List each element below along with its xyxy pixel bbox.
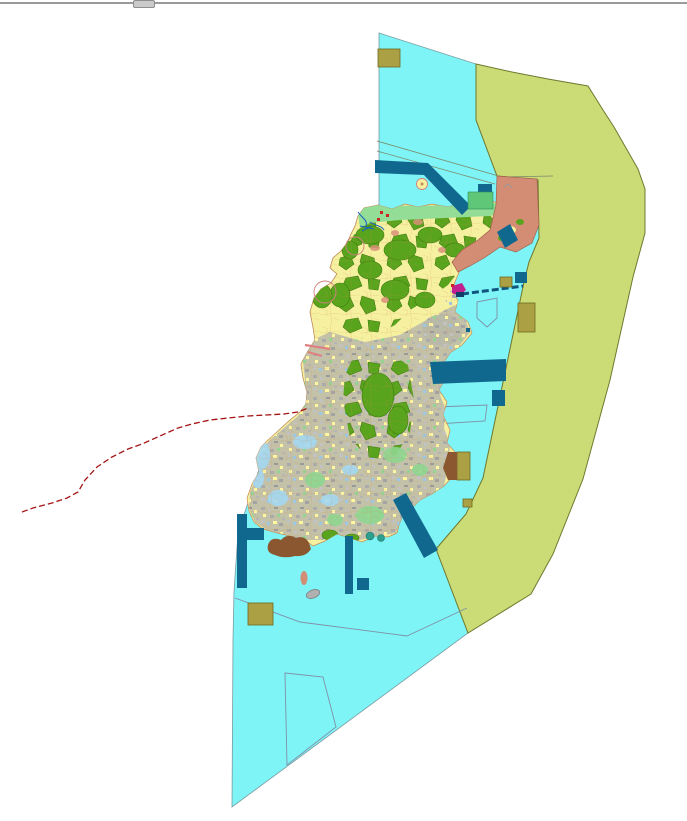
khaki-blob-small [463,499,472,507]
khaki-block-east [518,303,535,332]
navy-square-east [515,272,527,283]
navy-dot-coast [466,328,470,332]
khaki-block-south [248,603,273,625]
brown-blob-south [268,536,311,557]
khaki-square-east-small [500,277,512,287]
bright-green-block [468,192,493,209]
northwest-islet [417,179,428,190]
navy-square-south [357,578,369,590]
navy-stub-southwest [247,528,264,540]
navy-square-mid [492,390,505,406]
map-canvas[interactable] [0,0,687,821]
harbor-band [430,359,506,384]
navy-strip-south [345,536,353,594]
navy-strip-southwest [237,514,247,588]
navy-rect-north [478,184,492,193]
khaki-block-coast [457,452,470,480]
khaki-block-north [378,49,400,67]
